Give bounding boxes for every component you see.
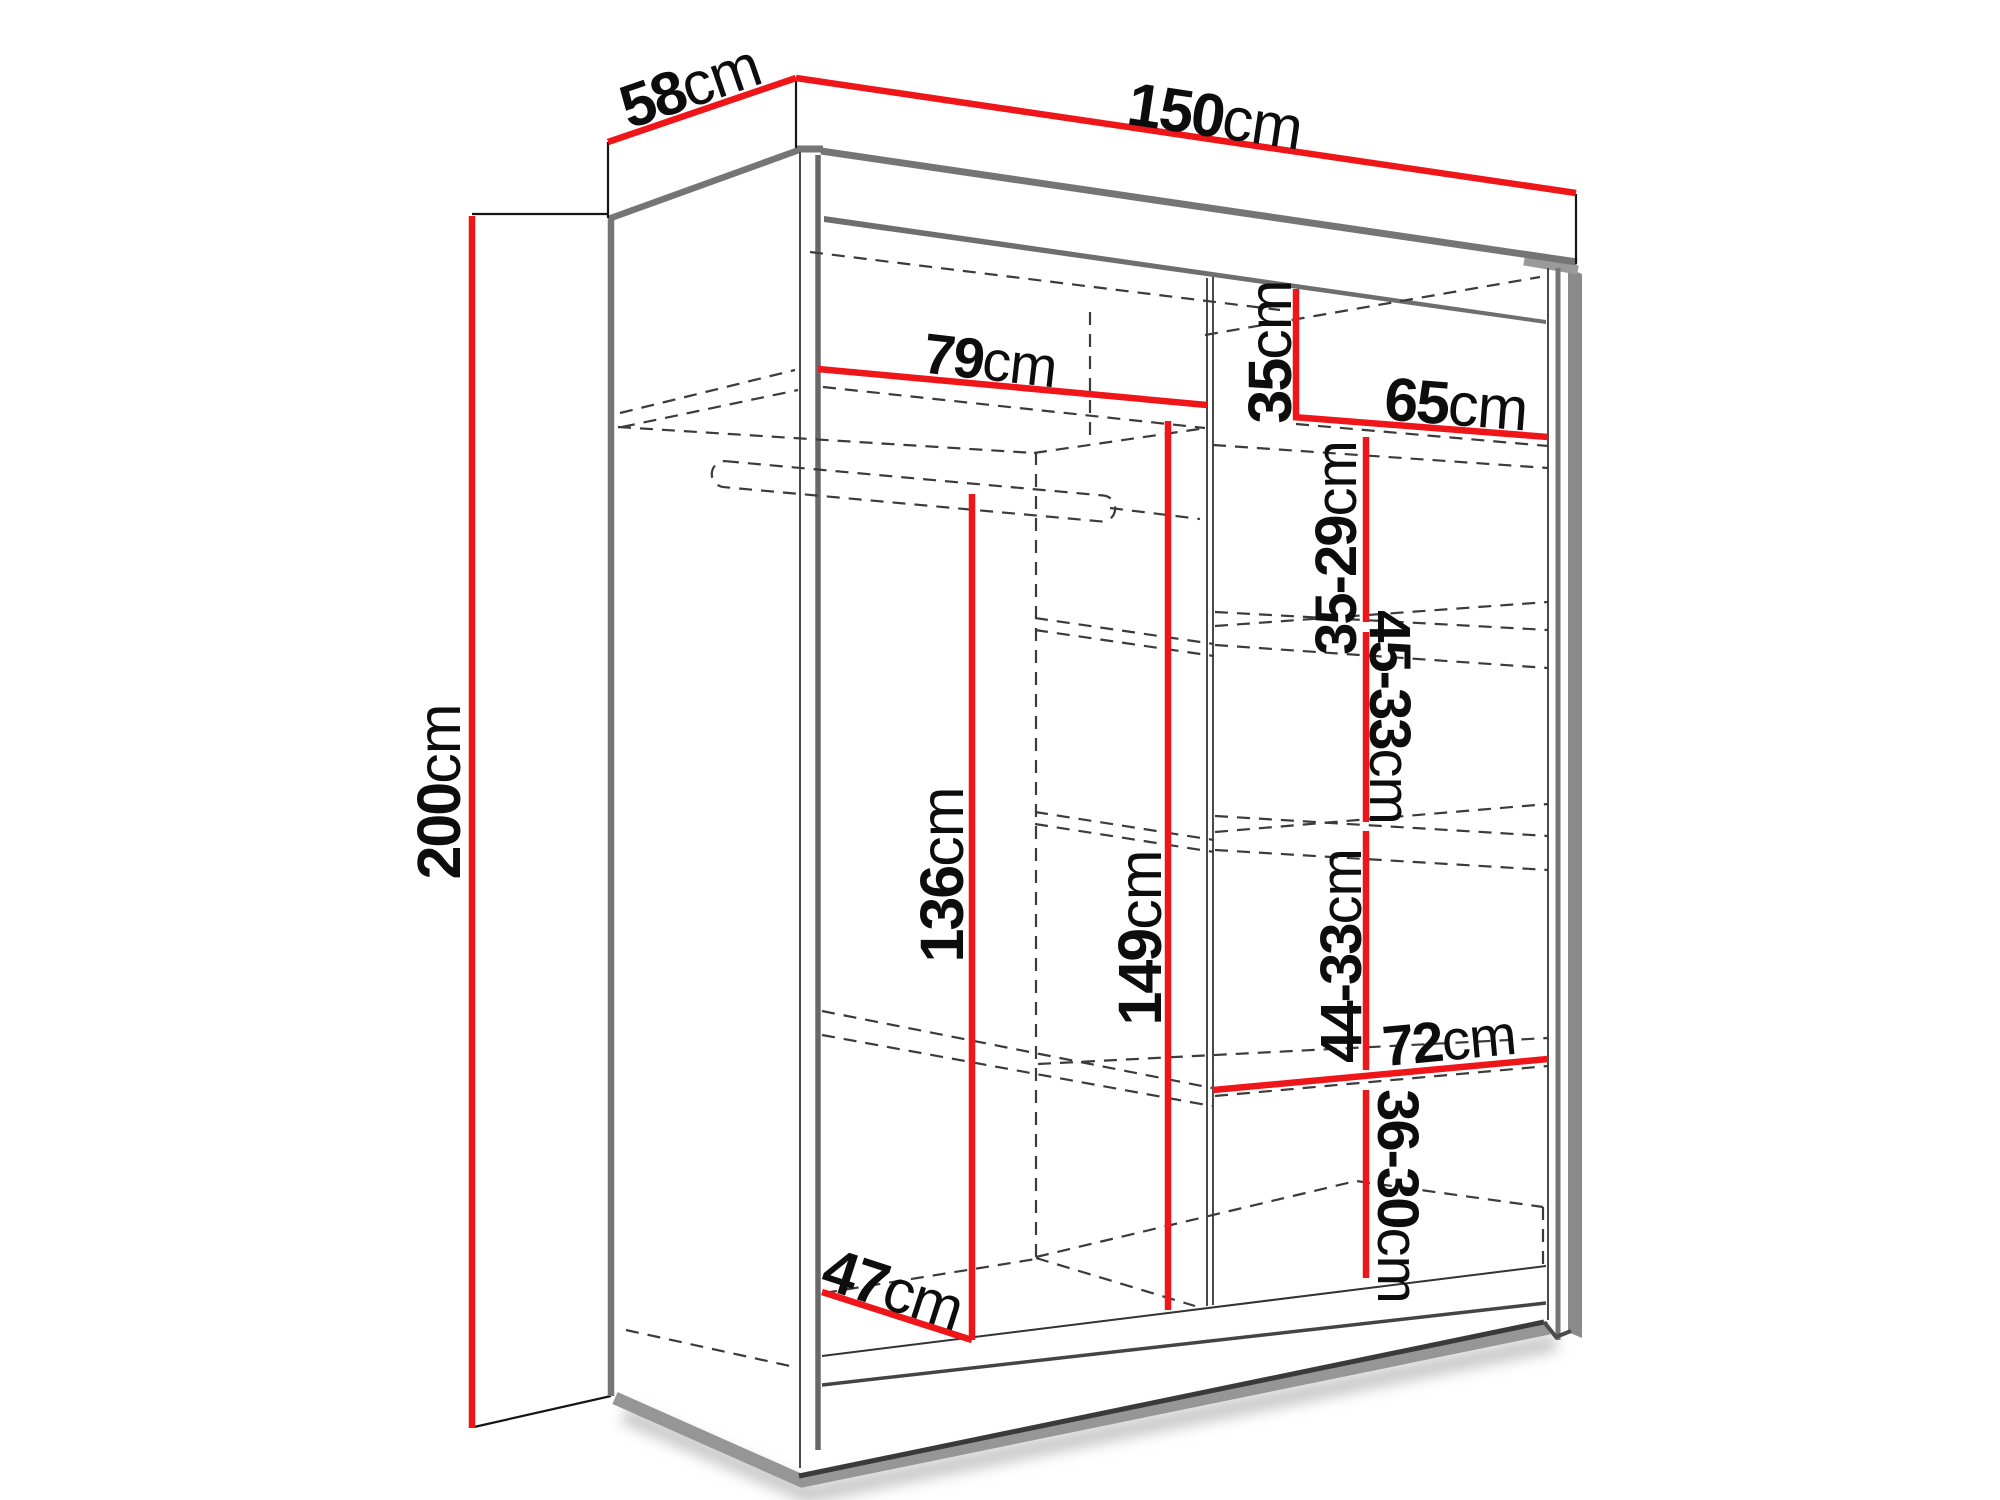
svg-text:36-30cm: 36-30cm — [1366, 1089, 1431, 1303]
svg-text:149cm: 149cm — [1106, 850, 1174, 1025]
svg-text:200cm: 200cm — [405, 704, 473, 879]
svg-text:35cm: 35cm — [1236, 280, 1304, 423]
svg-text:136cm: 136cm — [908, 787, 976, 962]
svg-text:72cm: 72cm — [1380, 1003, 1519, 1079]
svg-text:45-33cm: 45-33cm — [1358, 610, 1423, 824]
svg-text:44-33cm: 44-33cm — [1309, 849, 1374, 1063]
svg-text:65cm: 65cm — [1382, 364, 1530, 443]
